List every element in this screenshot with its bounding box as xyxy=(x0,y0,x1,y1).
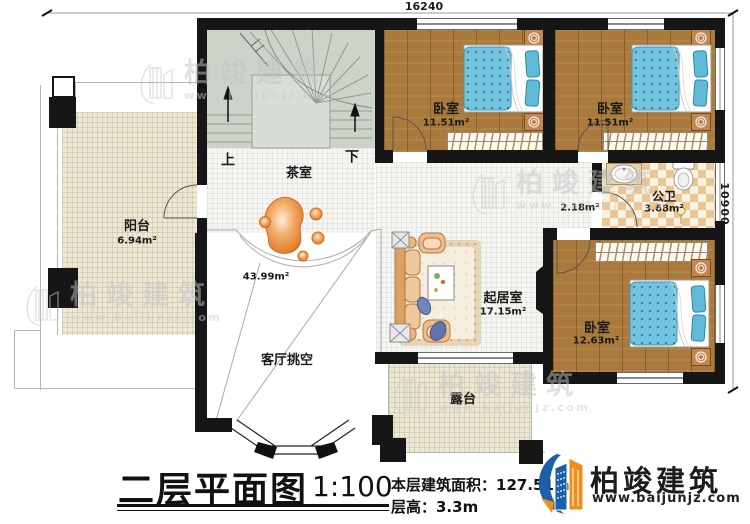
title-underline xyxy=(117,504,389,507)
roof-outline-line xyxy=(75,82,197,83)
wall-segment xyxy=(197,218,207,233)
carpet-inner xyxy=(406,247,474,339)
nightstand xyxy=(691,259,711,277)
wall-segment xyxy=(590,228,715,240)
living-room-carpet xyxy=(399,240,481,346)
bedroom-a-label: 卧室 xyxy=(433,103,459,117)
wardrobe xyxy=(447,132,543,151)
terrace-door-window xyxy=(418,352,513,364)
wall-segment xyxy=(543,240,553,384)
wall-segment xyxy=(513,352,543,364)
balcony-railing-line xyxy=(40,85,41,390)
wall-segment xyxy=(683,372,725,384)
wall-segment xyxy=(195,418,232,432)
bedroom-a-area: 11.51m² xyxy=(423,118,469,129)
living-void-label: 客厅挑空 xyxy=(261,354,313,368)
brand-logo-icon xyxy=(534,450,588,514)
window xyxy=(617,372,683,384)
nightstand xyxy=(691,348,711,366)
wall-segment xyxy=(608,150,715,163)
sitting-room-area: 17.15m² xyxy=(480,307,526,318)
staircase-floor xyxy=(207,30,375,148)
wall-segment xyxy=(592,163,602,192)
bathroom-label: 公卫 xyxy=(652,190,676,203)
window xyxy=(715,285,725,343)
void-boundary xyxy=(207,229,381,426)
column xyxy=(49,97,76,128)
brand-website: www.baijunjz.com xyxy=(592,491,741,506)
wall-segment xyxy=(375,150,393,163)
nightstand xyxy=(524,29,544,47)
bedroom-c-label: 卧室 xyxy=(584,322,610,336)
bathroom-area: 3.68m² xyxy=(644,204,683,215)
window xyxy=(608,18,664,30)
column xyxy=(380,438,406,462)
title-underline xyxy=(117,510,389,511)
dimension-right: 10900 xyxy=(718,182,730,225)
hallway-area: 2.18m² xyxy=(560,203,599,214)
tea-room-area: 43.99m² xyxy=(243,272,289,283)
lower-floor-outline xyxy=(14,330,15,388)
wall-segment xyxy=(543,228,557,240)
bedroom-b-area: 11.51m² xyxy=(587,118,633,129)
bay-window xyxy=(231,420,355,459)
sitting-room-label: 起居室 xyxy=(483,292,522,306)
bedroom-c-area: 12.63m² xyxy=(573,336,619,347)
wall-segment xyxy=(553,372,617,384)
wall-segment xyxy=(197,30,207,185)
plan-scale: 1:100 xyxy=(312,470,393,503)
wardrobe xyxy=(603,132,708,151)
wall-segment xyxy=(195,233,207,423)
bedroom-b-label: 卧室 xyxy=(597,103,623,117)
wall-segment xyxy=(427,150,578,163)
watermark-logo-icon xyxy=(138,58,176,104)
brand-logo xyxy=(534,450,588,518)
stair-down-label: 下 xyxy=(345,150,359,165)
bathroom-counter xyxy=(606,163,642,185)
window xyxy=(715,48,725,110)
wall-segment xyxy=(543,30,555,152)
hallway-floor xyxy=(543,162,592,228)
lower-floor-outline xyxy=(14,330,40,331)
floor-plan-canvas: 阳台 6.94m² 茶室 43.99m² 上 下 客厅挑空 卧室 11.51m²… xyxy=(0,0,750,524)
nightstand xyxy=(691,113,711,131)
window xyxy=(417,18,517,30)
balcony-label: 阳台 xyxy=(124,220,150,234)
dimension-top: 16240 xyxy=(405,1,443,13)
balcony-window-box xyxy=(52,76,75,98)
terrace-label: 露台 xyxy=(450,393,476,407)
tea-room-label: 茶室 xyxy=(286,167,312,181)
column xyxy=(48,268,78,308)
lower-floor-outline xyxy=(14,388,197,389)
wall-segment xyxy=(375,30,384,152)
balcony-area: 6.94m² xyxy=(117,236,156,247)
stair-up-label: 上 xyxy=(221,153,235,168)
nightstand xyxy=(524,113,544,131)
floor-height-text: 层高：3.3m xyxy=(391,496,478,517)
wall-segment xyxy=(375,352,418,364)
nightstand xyxy=(691,29,711,47)
